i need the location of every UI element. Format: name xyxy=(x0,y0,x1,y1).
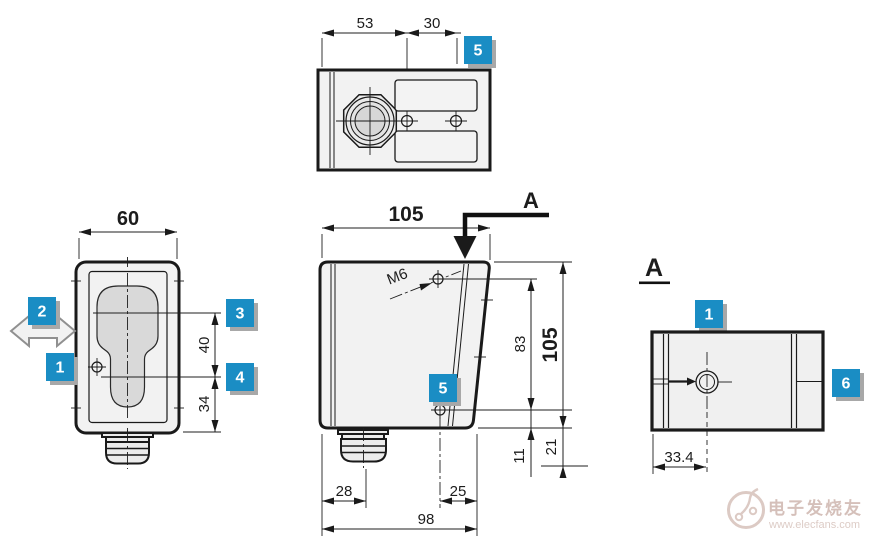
svg-text:3: 3 xyxy=(236,306,245,323)
front-dimension-60: 60 xyxy=(79,208,177,259)
callout-badge-4: 4 xyxy=(226,363,258,395)
callout-badge-2: 2 xyxy=(28,297,60,329)
cable-gland-side xyxy=(338,428,388,468)
dim-11: 11 xyxy=(511,448,528,464)
elecfans-logo-icon xyxy=(729,489,764,528)
watermark-url: www.elecfans.com xyxy=(768,519,860,531)
side-housing xyxy=(320,262,489,428)
svg-text:4: 4 xyxy=(236,370,245,387)
section-arrow-a: A xyxy=(454,188,550,259)
svg-text:6: 6 xyxy=(842,376,851,393)
dim-98: 98 xyxy=(418,511,435,528)
dim-83: 83 xyxy=(512,336,529,353)
svg-text:2: 2 xyxy=(38,304,47,321)
svg-text:1: 1 xyxy=(705,307,714,324)
front-view: 60 xyxy=(11,208,258,469)
svg-text:5: 5 xyxy=(474,43,483,60)
watermark-brand: 电子发烧友 xyxy=(768,498,863,518)
dim-33-4: 33.4 xyxy=(664,449,693,466)
technical-drawing-canvas: 53 30 5 xyxy=(0,0,873,542)
svg-text:5: 5 xyxy=(439,381,448,398)
svg-text:1: 1 xyxy=(56,360,65,377)
dim-21: 21 xyxy=(543,439,560,456)
label-panel-upper xyxy=(395,80,477,111)
dim-105-width: 105 xyxy=(388,203,423,226)
dim-60: 60 xyxy=(117,208,139,230)
dim-105-height: 105 xyxy=(539,327,562,362)
side-view: 105 A M6 xyxy=(320,188,588,536)
section-dimension-33-4: 33.4 xyxy=(653,434,706,474)
label-panel-lower xyxy=(395,131,477,162)
svg-text:A: A xyxy=(645,254,663,282)
front-dimension-40-34: 40 34 xyxy=(183,313,221,432)
watermark: 电子发烧友 www.elecfans.com xyxy=(729,489,864,531)
callout-badge-5-side: 5 xyxy=(429,374,461,406)
section-arrow-label: A xyxy=(523,188,539,213)
dim-30: 30 xyxy=(424,15,441,32)
callout-badge-5-top: 5 xyxy=(464,36,496,68)
dim-53: 53 xyxy=(357,15,374,32)
dim-34: 34 xyxy=(196,396,213,413)
cable-gland-front xyxy=(102,430,153,469)
dim-25: 25 xyxy=(450,483,467,500)
section-view-a: A 1 33.4 xyxy=(639,254,864,474)
callout-badge-6: 6 xyxy=(832,369,864,401)
top-view: 53 30 5 xyxy=(318,15,496,170)
dim-28: 28 xyxy=(336,483,353,500)
dim-40: 40 xyxy=(196,337,213,354)
section-view-label: A xyxy=(639,254,670,284)
callout-badge-3: 3 xyxy=(226,299,258,331)
drawing-svg: 53 30 5 xyxy=(0,0,873,542)
callout-badge-1-section: 1 xyxy=(695,300,727,332)
callout-badge-1-front: 1 xyxy=(46,353,78,385)
